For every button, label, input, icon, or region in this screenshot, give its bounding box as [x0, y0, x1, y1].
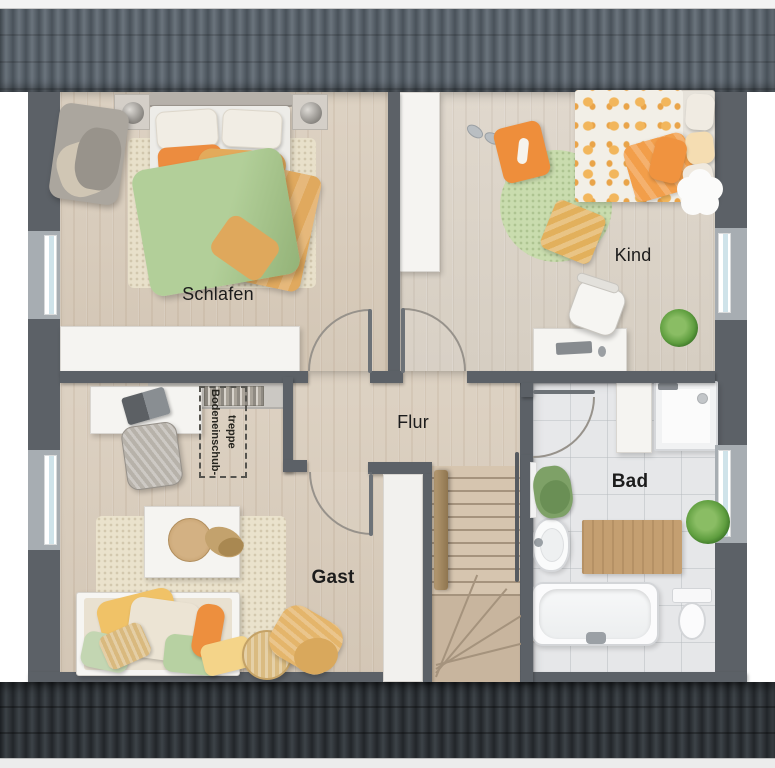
wall-schlafen-kind [388, 92, 400, 377]
toilet-bowl [678, 602, 706, 640]
stair-rail-right [515, 452, 519, 582]
plant-kind [660, 309, 698, 347]
plant-bad [686, 500, 730, 544]
mouse-kind [598, 346, 606, 357]
bathtub-faucet [586, 632, 606, 644]
door-leaf-schlafen [368, 309, 372, 373]
floor-plan: Bodeneinschub- treppe Schlafen Kind Flur… [0, 0, 775, 768]
bath-cabinet [616, 381, 652, 453]
pillow-kind-1 [685, 93, 715, 131]
roof-bottom-edge [0, 758, 775, 768]
door-leaf-gast [369, 474, 373, 536]
shower-drain [697, 393, 708, 404]
stair-winders [432, 596, 520, 682]
label-flur: Flur [383, 412, 443, 433]
toilet-tank [672, 588, 712, 603]
chair-nook [120, 420, 184, 491]
shower-head [658, 383, 678, 390]
keyboard-kind [556, 341, 593, 355]
stair-handrail [434, 470, 448, 590]
pillow-kind-2 [684, 131, 715, 166]
attic-hatch-outline: Bodeneinschub- treppe [199, 386, 247, 478]
window-gast [44, 455, 57, 545]
wall-stair-edge [423, 474, 432, 682]
flower-table [688, 181, 712, 205]
duvet-green [130, 146, 302, 298]
label-kind: Kind [598, 245, 668, 266]
wall-schlafen-south [60, 371, 308, 383]
label-schlafen: Schlafen [148, 284, 288, 305]
door-leaf-kind [401, 308, 405, 373]
shower [654, 381, 718, 451]
label-gast: Gast [298, 567, 368, 589]
wall-gast-stub [283, 460, 307, 472]
wall-nook-flur [283, 377, 293, 472]
door-leaf-bad [533, 390, 595, 394]
bed-headboard [146, 92, 294, 107]
wall-stair-closet [383, 474, 423, 682]
wall-door-stub-mid [370, 371, 403, 383]
window-schlafen [44, 235, 57, 315]
window-kind [718, 233, 731, 313]
label-bad: Bad [602, 471, 658, 493]
attic-hatch-label: Bodeneinschub- treppe [207, 389, 240, 475]
bath-mat [582, 520, 682, 574]
roof-ridge [0, 0, 775, 9]
wall-kind-south [467, 371, 715, 383]
wall-bad-west-top [521, 383, 533, 397]
sideboard [60, 326, 300, 372]
sink-bowl [540, 528, 564, 562]
bed-pillow-right [221, 108, 283, 149]
wall-gast-hinge [368, 462, 432, 474]
lamp-right [300, 102, 322, 124]
roof-band-top [0, 9, 775, 92]
wardrobe-kind [398, 92, 440, 272]
roof-band-bottom [0, 682, 775, 768]
sink-faucet [534, 538, 543, 547]
